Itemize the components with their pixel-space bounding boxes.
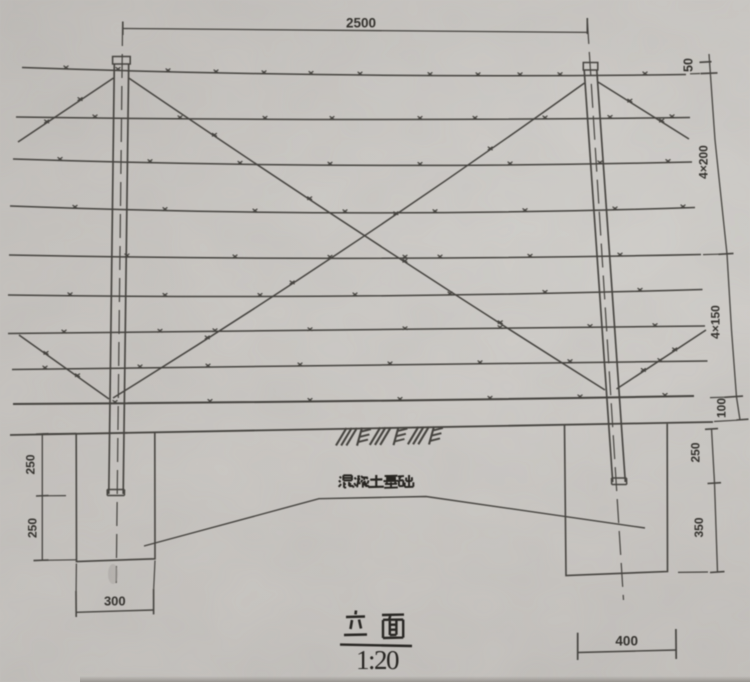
svg-text:300: 300: [104, 593, 126, 608]
svg-text:4×200: 4×200: [697, 145, 711, 179]
svg-text:400: 400: [615, 634, 638, 649]
svg-text:50: 50: [682, 58, 696, 72]
svg-text:250: 250: [24, 454, 38, 474]
svg-text:4×150: 4×150: [709, 305, 723, 339]
svg-text:1:20: 1:20: [356, 645, 399, 675]
svg-text:350: 350: [692, 517, 706, 537]
svg-text:250: 250: [689, 442, 703, 462]
svg-text:2500: 2500: [346, 16, 376, 31]
svg-text:100: 100: [715, 398, 729, 418]
svg-text:250: 250: [26, 518, 40, 538]
